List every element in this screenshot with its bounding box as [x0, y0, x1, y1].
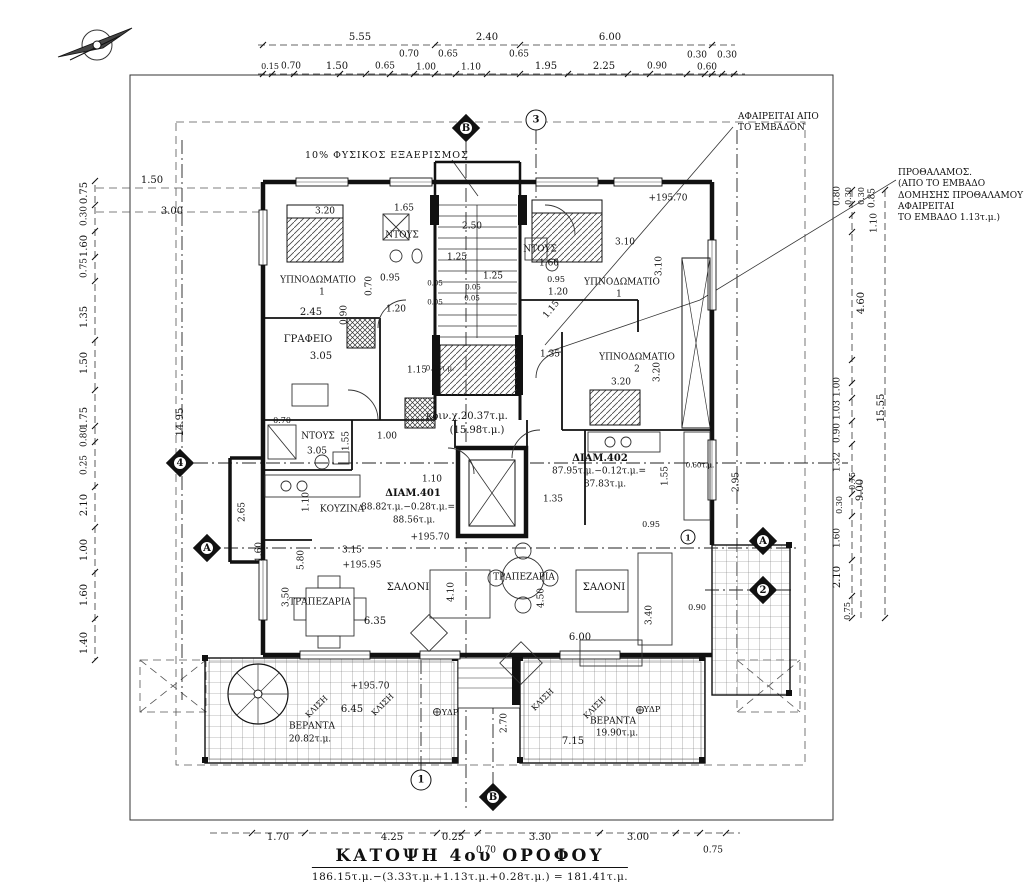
dim-label: 0.65	[438, 51, 458, 60]
level-label: +195.95	[342, 562, 381, 571]
dim-label: 4.25	[381, 833, 403, 843]
dim-label: 1.50	[141, 176, 163, 186]
section-marker-4: 4	[169, 452, 191, 474]
dim-label: 0.80	[81, 427, 90, 447]
dim-label: 5.55	[349, 33, 371, 43]
room-label: ΥΠΝΟΔΩΜΑΤΙΟ	[280, 277, 356, 286]
room-label: 2	[634, 366, 640, 375]
dim-label: 6.45	[341, 705, 363, 715]
level-label: +195.70	[648, 195, 687, 204]
section-marker-A: A	[196, 537, 218, 559]
section-marker-A: A	[752, 530, 774, 552]
dim-label: 1.10	[461, 64, 481, 73]
note-area-deduction: ΑΦΑΙΡΕΙΤΑΙ ΑΠΟ ΤΟ ΕΜΒΑΔΟΝ	[738, 112, 819, 135]
area-label: 20.82τ.μ.	[289, 736, 331, 745]
dim-label: 3.00	[161, 207, 183, 217]
area-label: 87.83τ.μ.	[584, 481, 626, 490]
dim-label: 1.32	[834, 452, 843, 472]
dim-label: 0.30	[717, 52, 737, 61]
note-vestibule-deduction: ΠΡΟΘΑΛΑΜΟΣ. (ΑΠΟ ΤΟ ΕΜΒΑΔΟ ΔΟΜΗΣΗΣ ΠΡΟΘΑ…	[898, 168, 1023, 224]
dim-label: 3.05	[307, 448, 327, 457]
area-label: 88.82τ.μ.−0.28τ.μ.=	[361, 504, 455, 513]
dim-label: 1.03	[834, 400, 843, 420]
north-arrow-icon	[58, 28, 132, 60]
dim-label: 0.75	[81, 258, 90, 278]
section-marker-2: 2	[752, 579, 774, 601]
dim-label: 1.10	[303, 492, 312, 512]
dim-label: 3.05	[310, 352, 332, 362]
area-label: 88.56τ.μ.	[393, 517, 435, 526]
area-label: 87.95τ.μ.−0.12τ.μ.=	[552, 468, 646, 477]
area-formula: 186.15τ.μ.−(3.33τ.μ.+1.13τ.μ.+0.28τ.μ.) …	[312, 871, 628, 883]
dim-label: 14.95	[176, 408, 186, 437]
room-label: ΤΡΑΠΕΖΑΡΙΑ	[289, 599, 351, 608]
dim-label: 1.20	[548, 289, 568, 298]
dim-label: 1.00	[416, 64, 436, 73]
dim-label: 1.95	[535, 62, 557, 72]
dim-label: 5.80	[298, 550, 307, 570]
dim-label: 0.25	[442, 833, 464, 843]
dim-label: 1.70	[267, 833, 289, 843]
dim-label: 0.75	[844, 602, 852, 620]
section-marker-B: B	[455, 117, 477, 139]
dim-label: 0.95	[547, 276, 565, 284]
level-label: +195.70	[410, 534, 449, 543]
apartment-label: ΔΙΑΜ.401	[385, 489, 441, 499]
dim-label: 6.00	[599, 33, 621, 43]
dim-label: 3.30	[529, 833, 551, 843]
dim-label: 6.35	[364, 617, 386, 627]
floor-plan-drawing	[0, 0, 1024, 883]
dim-label: 0.05	[427, 281, 443, 288]
dim-label: 1.50	[80, 352, 90, 374]
dim-label: 1.35	[80, 306, 90, 328]
dim-label: 1.10	[871, 213, 880, 233]
dim-label: 1.15	[407, 367, 427, 376]
dim-label: 0.70	[273, 417, 291, 425]
apartment-label: ΔΙΑΜ.402	[572, 454, 628, 464]
dim-label: 1.20	[386, 306, 406, 315]
room-label: 1	[616, 291, 622, 300]
room-label: ΝΤΟΥΣ	[301, 433, 335, 442]
dim-label: 1.35	[540, 351, 560, 360]
dim-label: 1.60	[80, 235, 90, 257]
dim-label: 4.50	[538, 588, 547, 608]
section-marker-3: 3	[526, 110, 547, 131]
dim-label: 0.60τ.μ.	[686, 463, 714, 470]
dim-label: 0.25	[81, 455, 90, 475]
dim-label: 1.65	[394, 205, 414, 214]
dim-label: 0.75	[703, 847, 723, 856]
drain-label: ΥΔΡ	[644, 706, 660, 714]
room-label: ΒΕΡΑΝΤΑ	[590, 718, 636, 727]
dim-label: 2.50	[462, 223, 482, 232]
dim-label: 1.00	[377, 433, 397, 442]
dim-label: 2.65	[239, 502, 248, 522]
dim-label: 0.70	[366, 276, 375, 296]
room-label: ΚΟΥΖΙΝΑ	[320, 506, 364, 515]
floor-plan-sheet: 10% ΦΥΣΙΚΟΣ ΕΞΑΕΡΙΣΜΟΣ ΑΦΑΙΡΕΙΤΑΙ ΑΠΟ ΤΟ…	[0, 0, 1024, 883]
dim-label: 0.95	[642, 521, 660, 529]
dim-label: 1.60	[80, 584, 90, 606]
dim-label: 3.40	[646, 605, 655, 625]
dim-label: 0.05	[464, 296, 480, 303]
dim-label: 0.28τ.μ.	[426, 366, 454, 373]
dim-label: 0.30	[687, 52, 707, 61]
dim-label: 4.10	[448, 582, 457, 602]
dim-label: 0.30	[836, 496, 844, 514]
dim-label: 0.75	[80, 182, 90, 204]
dim-label: 3.20	[611, 379, 631, 388]
dim-label: 0.30	[845, 187, 853, 205]
room-label: ΥΠΝΟΔΩΜΑΤΙΟ	[599, 354, 675, 363]
dim-label: 2.45	[300, 308, 322, 318]
dim-label: 15.55	[877, 394, 887, 423]
dim-label: 3.20	[654, 362, 663, 382]
section-marker-1: 1	[411, 770, 432, 791]
dim-label: 2.95	[733, 472, 742, 492]
dim-label: 3.15	[342, 547, 362, 556]
dim-label: 1.00	[834, 377, 843, 397]
room-label: ΝΤΟΥΣ	[385, 232, 419, 241]
dim-label: 3.10	[656, 256, 665, 276]
dim-label: 1.60	[834, 528, 843, 548]
dim-label: 0.80	[834, 186, 843, 206]
dim-label: 0.85	[869, 188, 878, 208]
dim-label: 2.10	[80, 494, 90, 516]
dim-label: 1.75	[80, 407, 90, 429]
room-label: ΝΤΟΥΣ	[523, 246, 557, 255]
dim-label: 1.25	[483, 273, 503, 282]
dim-label: 7.15	[562, 737, 584, 747]
dim-label: 0.90	[647, 63, 667, 72]
dim-label: 9.00	[856, 479, 866, 501]
dim-label: 0.05	[427, 300, 443, 307]
dim-label: 1.60	[256, 542, 265, 562]
dim-label: 1.50	[326, 62, 348, 72]
dim-label: 0.15	[261, 63, 279, 71]
dim-label: 0.65	[509, 51, 529, 60]
dim-label: 2.10	[833, 566, 843, 588]
dim-label: 3.00	[627, 833, 649, 843]
area-label: 19.90τ.μ.	[596, 730, 638, 739]
drain-label: ΥΔΡ	[442, 709, 458, 717]
dim-label: 1.40	[80, 632, 90, 654]
section-marker-1: 1	[681, 530, 696, 545]
dim-label: 0.70	[399, 51, 419, 60]
dim-label: 0.30	[858, 187, 866, 205]
dim-label: 1.10	[422, 476, 442, 485]
note-natural-ventilation: 10% ΦΥΣΙΚΟΣ ΕΞΑΕΡΙΣΜΟΣ	[305, 150, 469, 162]
dim-label: 0.60	[697, 64, 717, 73]
area-label: (15.98τ.μ.)	[450, 426, 505, 436]
room-label: ΤΡΑΠΕΖΑΡΙΑ	[493, 574, 555, 583]
room-label: ΒΕΡΑΝΤΑ	[289, 723, 335, 732]
dim-label: 4.60	[857, 292, 867, 314]
dim-label: 6.00	[569, 633, 591, 643]
level-label: +195.70	[350, 683, 389, 692]
dim-label: 0.90	[688, 604, 706, 612]
room-label: ΥΠΝΟΔΩΜΑΤΙΟ	[584, 279, 660, 288]
dim-label: 0.95	[380, 275, 400, 284]
dim-label: 0.70	[281, 63, 301, 72]
dim-label: 0.05	[465, 285, 481, 292]
dim-label: 0.90	[834, 423, 843, 443]
area-label: κοιν.χ.20.37τ.μ.	[426, 412, 508, 422]
dim-label: 1.25	[447, 254, 467, 263]
title-block: ΚΑΤΟΨΗ 4ου ΟΡΟΦΟΥ 186.15τ.μ.−(3.33τ.μ.+1…	[312, 846, 628, 883]
room-label: 1	[319, 289, 325, 298]
dim-label: 1.00	[80, 539, 90, 561]
room-label: ΣΑΛΟΝΙ	[583, 583, 625, 593]
dim-label: 1.55	[343, 431, 352, 451]
dim-label: 3.20	[315, 208, 335, 217]
dim-label: 3.10	[615, 239, 635, 248]
dim-label: 1.60	[539, 260, 559, 269]
dim-label: 2.70	[501, 713, 510, 733]
dim-label: 0.65	[375, 63, 395, 72]
room-label: ΓΡΑΦΕΙΟ	[284, 335, 333, 345]
room-label: ΣΑΛΟΝΙ	[387, 583, 429, 593]
dim-label: 2.25	[593, 62, 615, 72]
dim-label: 2.40	[476, 33, 498, 43]
dim-label: 1.35	[543, 496, 563, 505]
drawing-title: ΚΑΤΟΨΗ 4ου ΟΡΟΦΟΥ	[312, 846, 628, 868]
dim-label: 0.30	[81, 206, 90, 226]
section-marker-B: B	[482, 786, 504, 808]
dim-label: 1.55	[662, 466, 671, 486]
dim-label: 0.90	[341, 305, 350, 325]
